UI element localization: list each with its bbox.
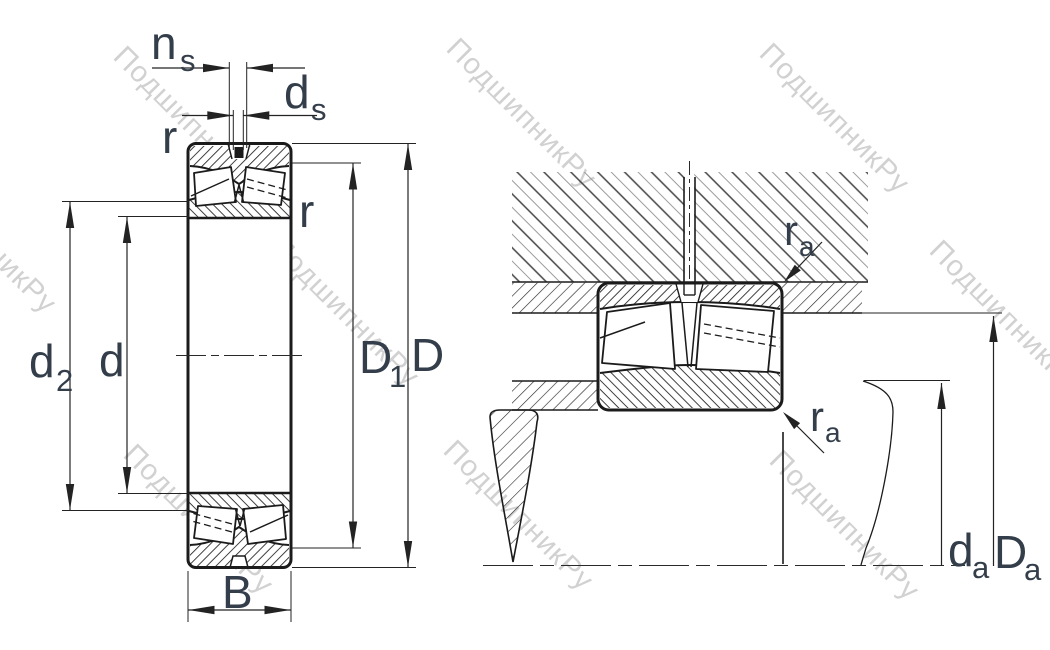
label-d: d: [99, 334, 125, 386]
label-ra-housing-sub: a: [799, 231, 815, 262]
label-ra-shaft-sub: a: [825, 417, 841, 448]
label-d2-sub: 2: [56, 363, 73, 398]
label-ns-sub: s: [180, 43, 196, 78]
dimension-Da: [862, 313, 1002, 566]
shaft-seat: [512, 381, 598, 410]
left-view-bearing-section: [176, 142, 306, 569]
bearing-technical-drawing: ПодшипникРу ПодшипникРу ПодшипникРу Подш…: [0, 0, 1050, 650]
label-d2: d: [29, 335, 55, 387]
label-r-inner: r: [299, 185, 314, 237]
label-ns: n: [151, 17, 177, 69]
watermark-layer: ПодшипникРу ПодшипникРу ПодшипникРу Подш…: [0, 32, 1050, 607]
label-da-sub: a: [972, 550, 990, 585]
watermark: ПодшипникРу: [763, 444, 926, 607]
label-ra-housing: r: [784, 207, 798, 254]
label-Da: D: [994, 526, 1027, 578]
label-Da-sub: a: [1024, 552, 1042, 587]
label-D1-sub: 1: [389, 359, 406, 394]
watermark: ПодшипникРу: [440, 32, 603, 195]
watermark: ПодшипникРу: [0, 157, 63, 320]
label-ds-sub: s: [311, 92, 327, 127]
watermark: ПодшипникРу: [923, 234, 1050, 397]
right-view-mounting-section: [483, 161, 965, 566]
label-r-outer: r: [162, 111, 177, 163]
label-ds: d: [284, 66, 310, 118]
label-da: d: [948, 524, 974, 576]
label-D1: D: [359, 331, 392, 383]
mounted-bearing: [598, 283, 782, 410]
label-D: D: [411, 329, 444, 381]
drawing-canvas: ПодшипникРу ПодшипникРу ПодшипникРу Подш…: [0, 0, 1050, 650]
lubrication-hole: [235, 147, 244, 158]
lubrication-groove: [676, 284, 703, 302]
label-ra-shaft: r: [810, 393, 824, 440]
label-B: B: [222, 566, 253, 618]
